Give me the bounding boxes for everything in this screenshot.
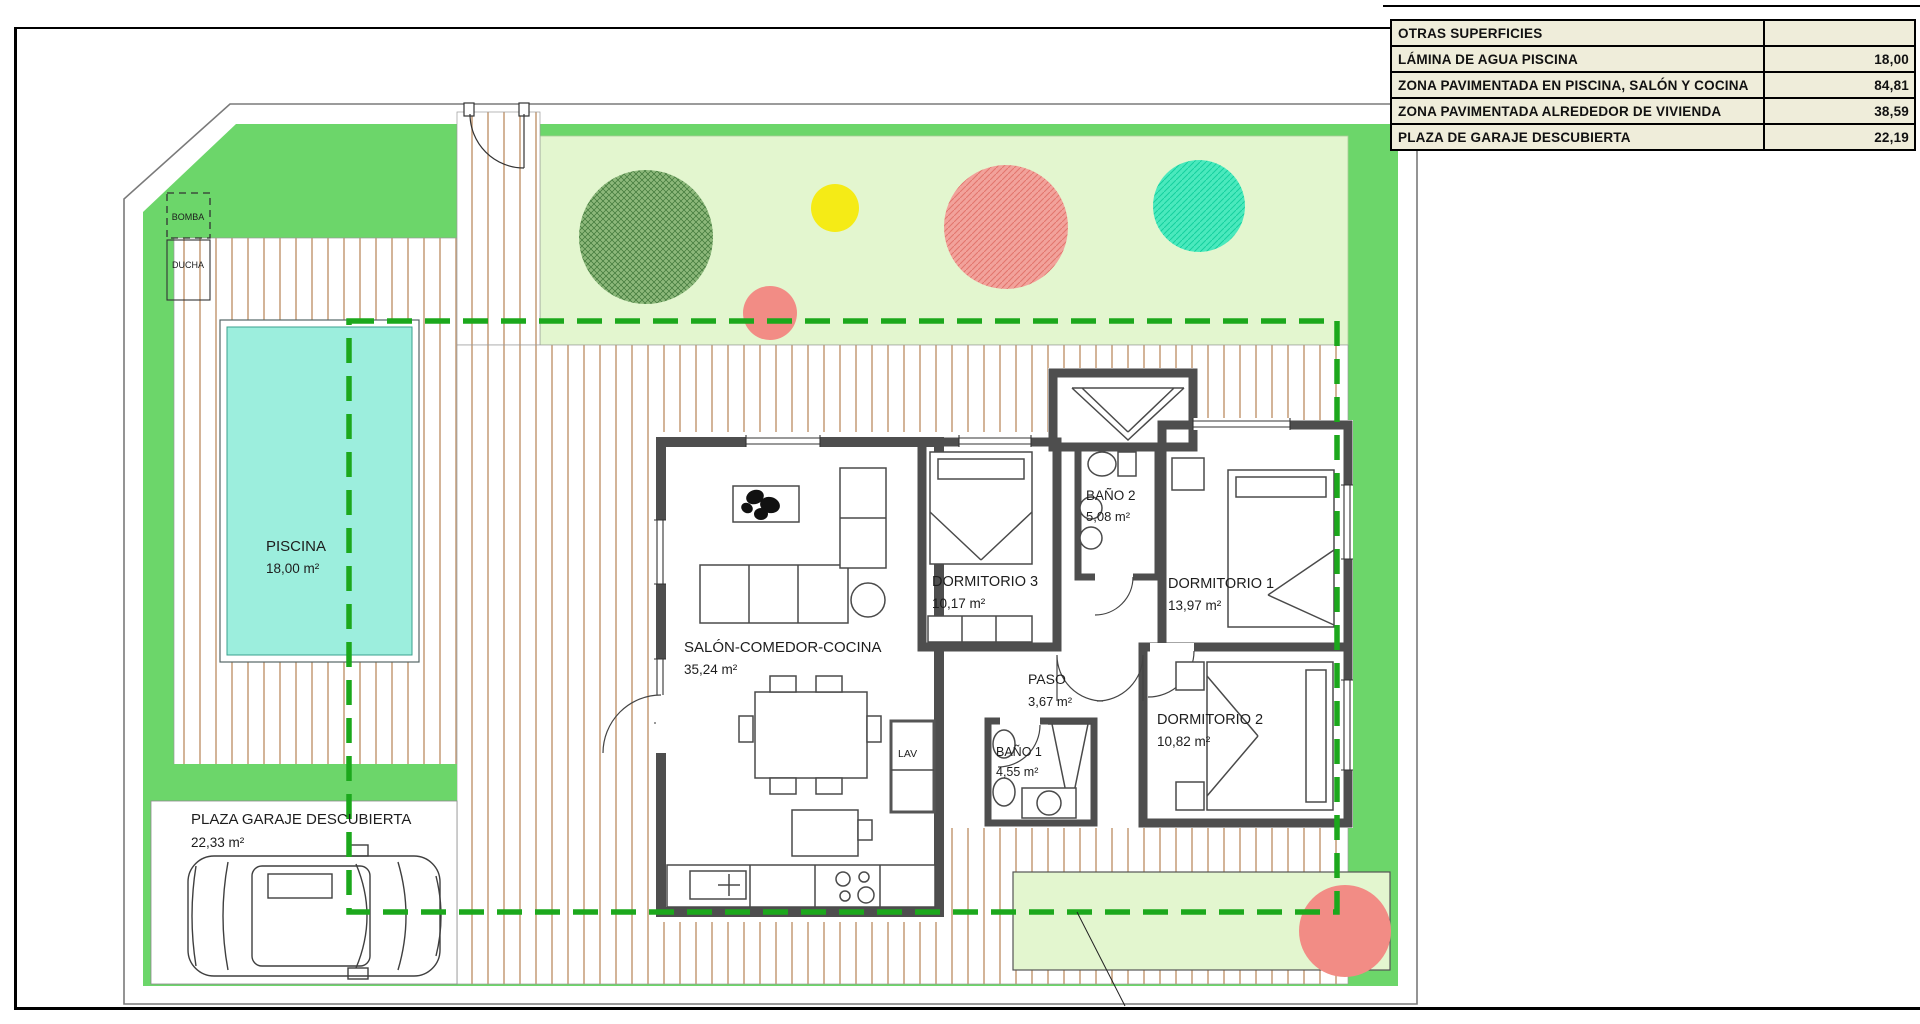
room-area-garaje: 22,33 m²: [191, 835, 245, 850]
sheet-border-top: [14, 27, 1390, 29]
surfaces-table-header-row: OTRAS SUPERFICIES: [1391, 20, 1915, 46]
room-label-piscina: PISCINA: [266, 538, 326, 555]
surface-label: LÁMINA DE AGUA PISCINA: [1391, 46, 1764, 72]
room-area-salon: 35,24 m²: [684, 662, 738, 677]
room-area-bano1: 4,55 m²: [996, 765, 1038, 779]
tree-teal-hatched: [1153, 160, 1245, 252]
surface-row: PLAZA DE GARAJE DESCUBIERTA 22,19: [1391, 124, 1915, 150]
tree-salmon-hatched: [944, 165, 1068, 289]
surface-label: ZONA PAVIMENTADA ALREDEDOR DE VIVIENDA: [1391, 98, 1764, 124]
plan-sheet: BOMBA DUCHA: [0, 0, 1920, 1024]
surface-row: ZONA PAVIMENTADA ALREDEDOR DE VIVIENDA 3…: [1391, 98, 1915, 124]
surface-row: LÁMINA DE AGUA PISCINA 18,00: [1391, 46, 1915, 72]
garage-area: [151, 801, 457, 984]
surface-value: 84,81: [1764, 72, 1915, 98]
surface-label: ZONA PAVIMENTADA EN PISCINA, SALÓN Y COC…: [1391, 72, 1764, 98]
sheet-border-left: [14, 27, 17, 1009]
room-area-dormitorio3: 10,17 m²: [932, 596, 986, 611]
room-label-bano2: BAÑO 2: [1086, 488, 1136, 503]
room-area-paso: 3,67 m²: [1028, 694, 1073, 709]
surface-label: PLAZA DE GARAJE DESCUBIERTA: [1391, 124, 1764, 150]
surface-value: 18,00: [1764, 46, 1915, 72]
room-label-paso: PASO: [1028, 671, 1066, 687]
pool: [220, 320, 419, 662]
room-area-bano2: 5,08 m²: [1086, 509, 1131, 524]
room-label-bano1: BAÑO 1: [996, 745, 1042, 759]
surfaces-table-title: OTRAS SUPERFICIES: [1391, 20, 1764, 46]
room-label-dormitorio2: DORMITORIO 2: [1157, 712, 1263, 728]
tree-green-hatched: [579, 170, 713, 304]
grass-strip-mid: [143, 764, 457, 801]
tree-salmon-bottom: [1299, 885, 1391, 977]
surface-value: 38,59: [1764, 98, 1915, 124]
tree-yellow: [811, 184, 859, 232]
surfaces-table: OTRAS SUPERFICIES LÁMINA DE AGUA PISCINA…: [1390, 19, 1916, 151]
ducha-label: DUCHA: [172, 260, 204, 270]
room-area-dormitorio2: 10,82 m²: [1157, 734, 1211, 749]
bomba-label: BOMBA: [172, 212, 205, 222]
floor-plan-canvas: BOMBA DUCHA: [0, 0, 1920, 1024]
tree-salmon-small: [743, 286, 797, 340]
room-area-piscina: 18,00 m²: [266, 561, 320, 576]
sheet-border-bottom: [14, 1007, 1920, 1010]
surface-row: ZONA PAVIMENTADA EN PISCINA, SALÓN Y COC…: [1391, 72, 1915, 98]
room-label-salon: SALÓN-COMEDOR-COCINA: [684, 639, 882, 656]
room-label-lav: LAV: [898, 748, 917, 760]
room-area-dormitorio1: 13,97 m²: [1168, 598, 1222, 613]
room-label-dormitorio1: DORMITORIO 1: [1168, 576, 1274, 592]
room-label-dormitorio3: DORMITORIO 3: [932, 574, 1038, 590]
room-label-garaje: PLAZA GARAJE DESCUBIERTA: [191, 811, 411, 828]
surfaces-table-title-value: [1764, 20, 1915, 46]
sheet-border-top-right: [1383, 5, 1920, 7]
surface-value: 22,19: [1764, 124, 1915, 150]
